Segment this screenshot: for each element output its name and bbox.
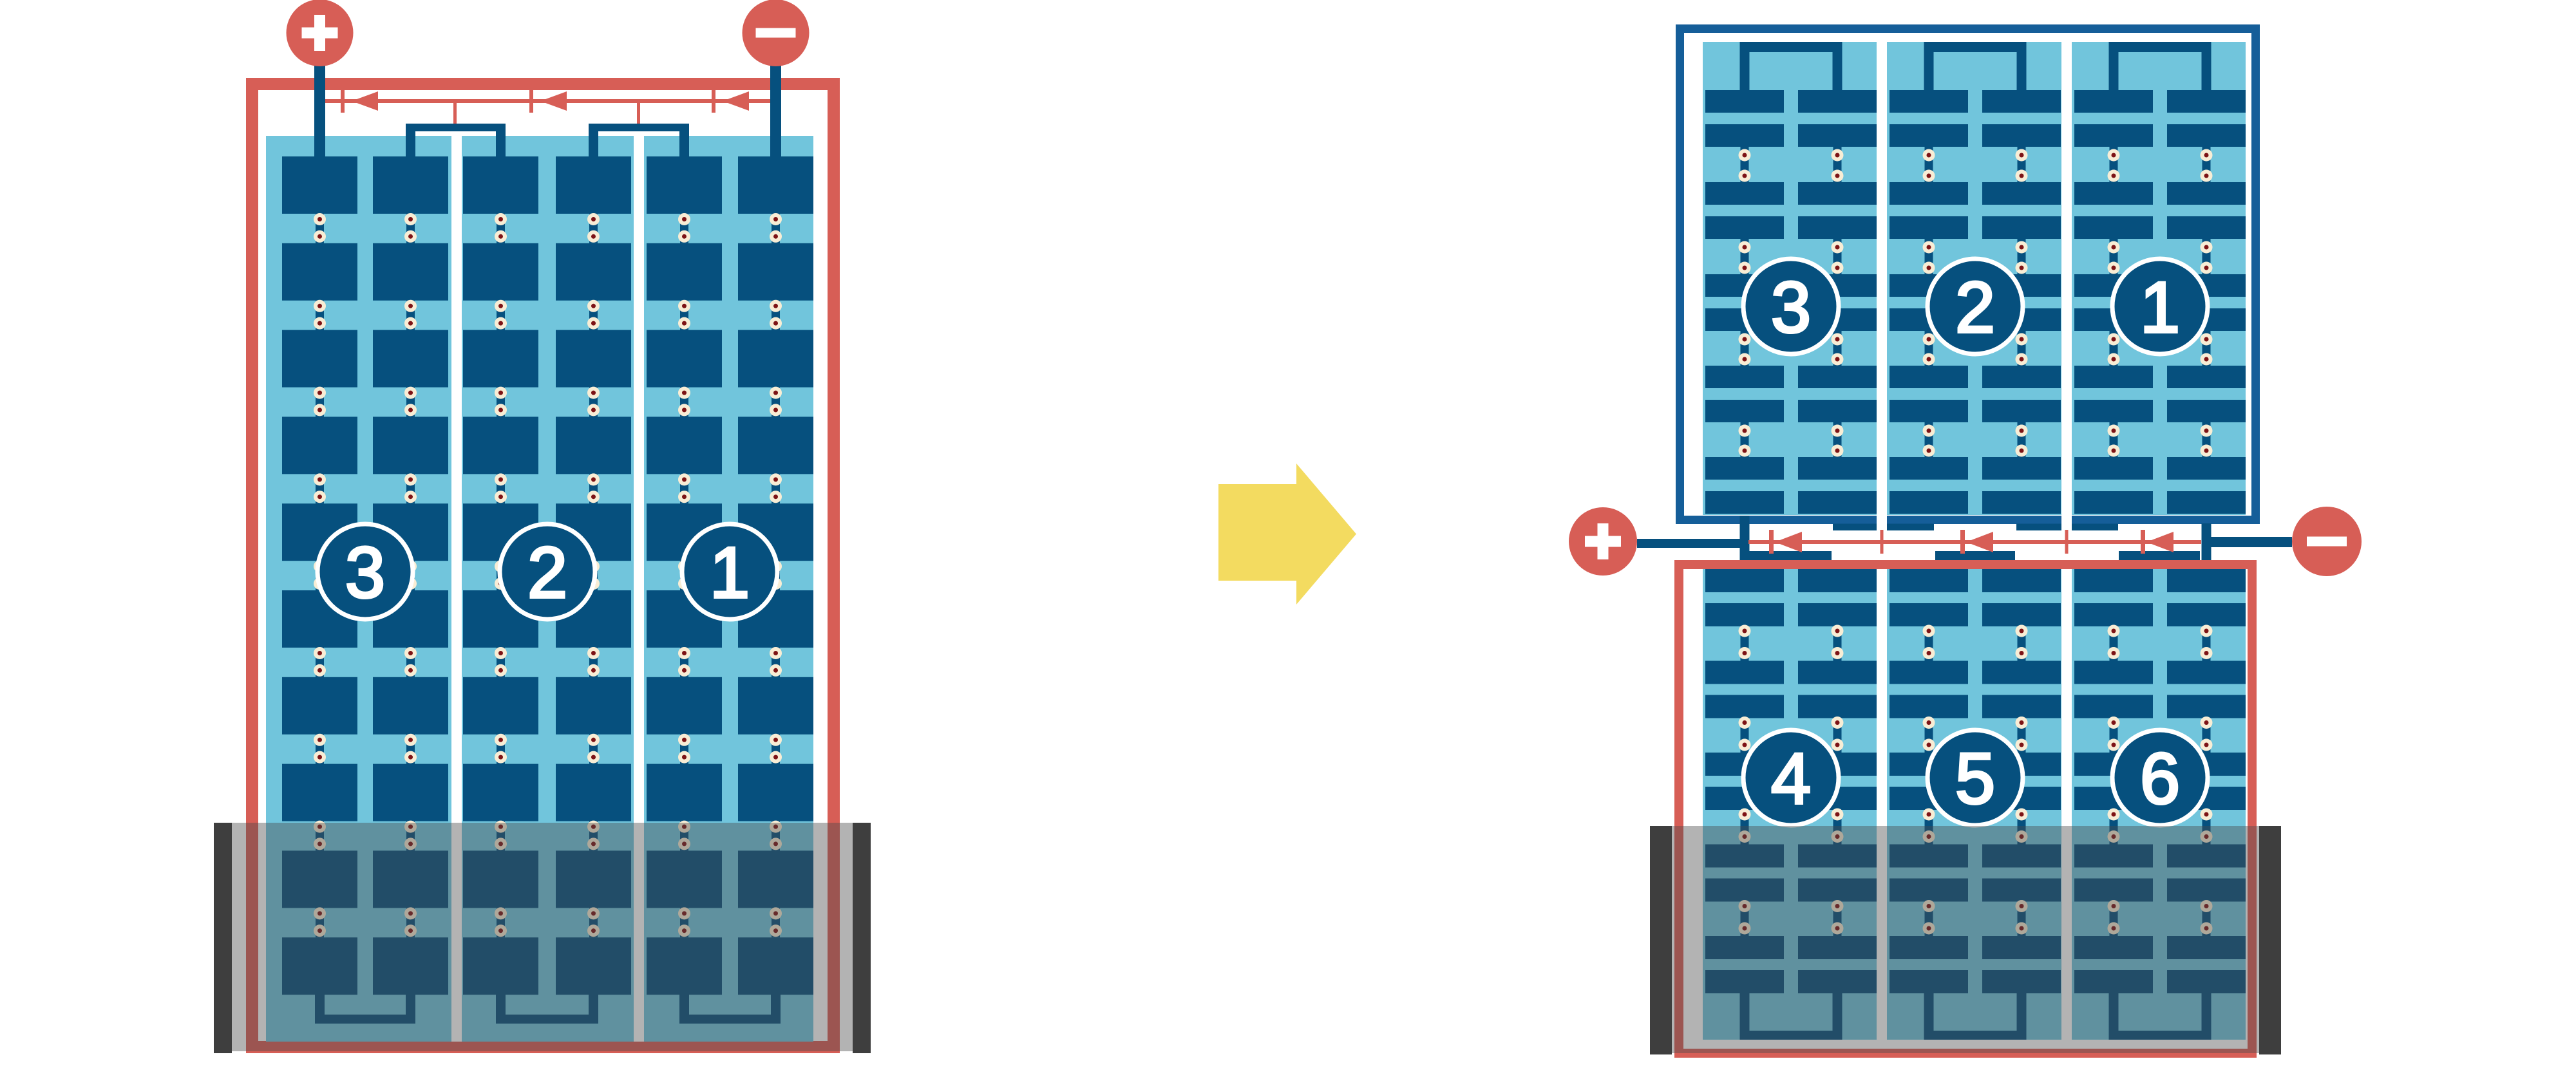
svg-text:1: 1: [710, 532, 750, 613]
svg-text:6: 6: [2140, 738, 2180, 819]
svg-text:2: 2: [527, 532, 567, 613]
svg-text:3: 3: [345, 532, 385, 613]
svg-text:4: 4: [1771, 738, 1811, 819]
svg-text:2: 2: [1955, 267, 1995, 348]
svg-text:5: 5: [1955, 738, 1995, 819]
svg-text:3: 3: [1771, 267, 1811, 348]
svg-text:1: 1: [2140, 267, 2180, 348]
